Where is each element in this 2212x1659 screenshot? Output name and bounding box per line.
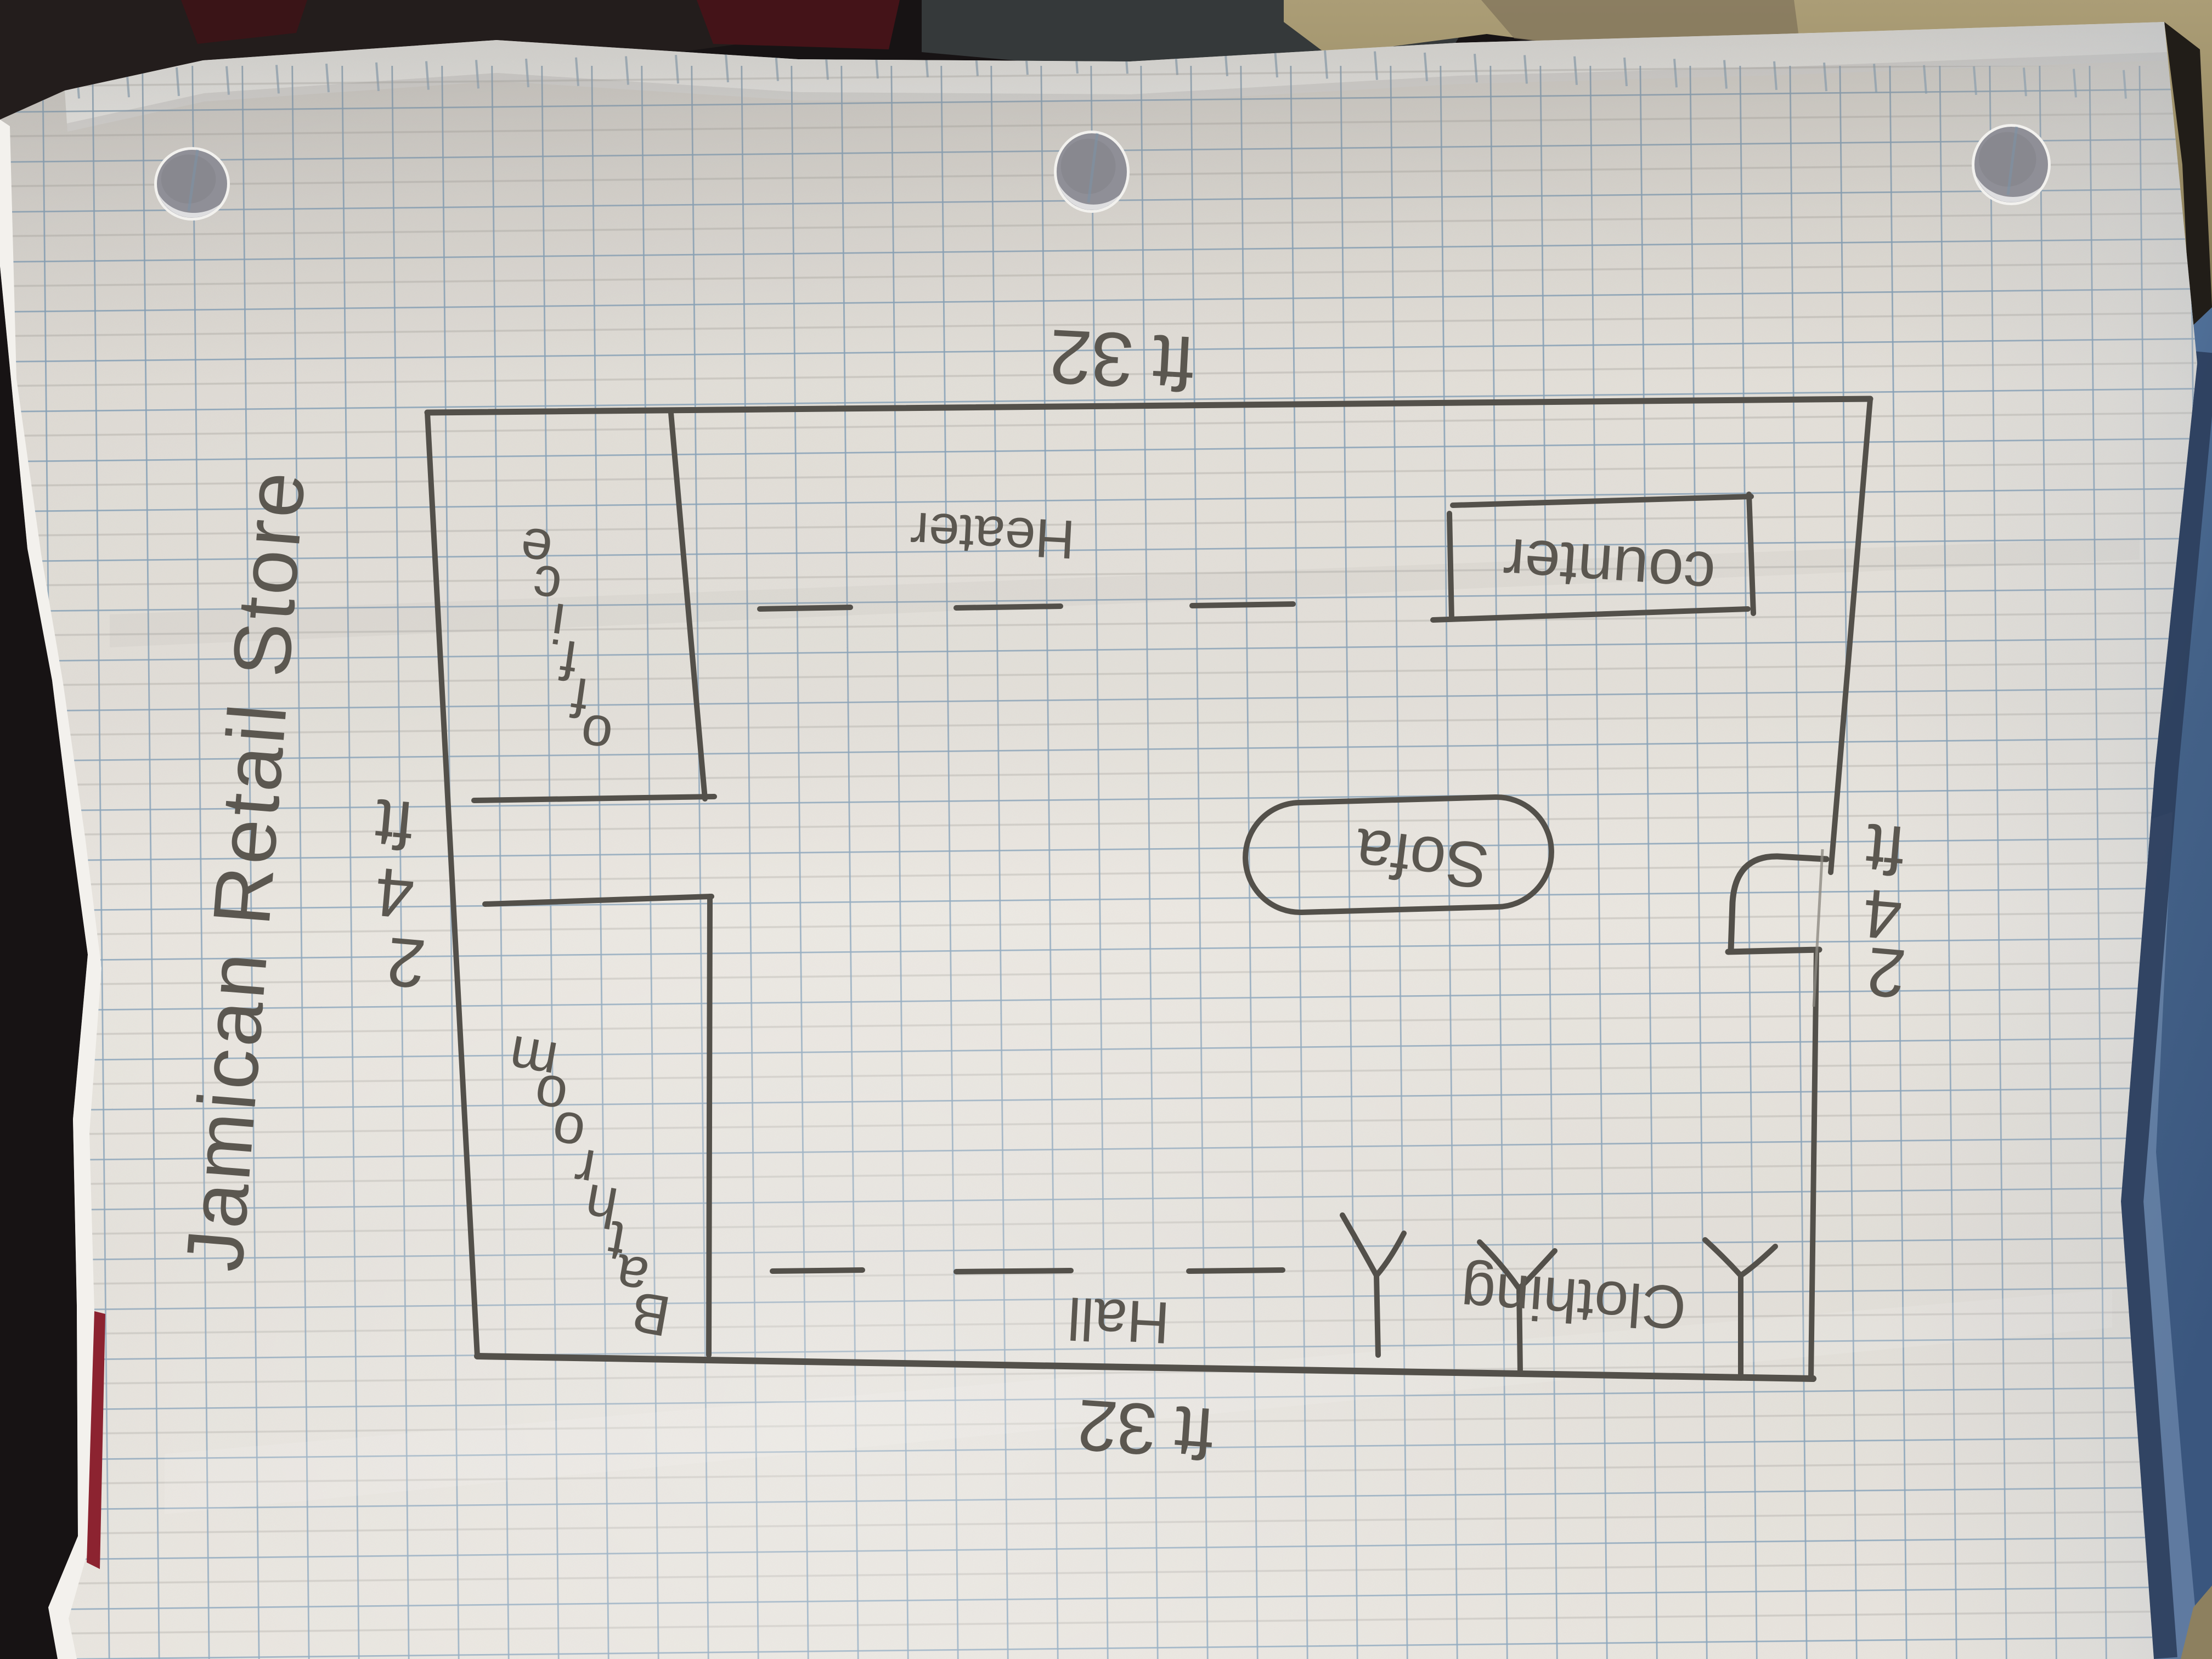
svg-text:Heater: Heater [909, 500, 1076, 571]
svg-text:4: 4 [372, 853, 417, 934]
svg-text:ft 32: ft 32 [1048, 313, 1196, 407]
svg-text:ft 32: ft 32 [1076, 1384, 1217, 1474]
svg-text:2: 2 [1864, 933, 1909, 1013]
svg-text:counter: counter [1501, 525, 1718, 611]
svg-text:ft: ft [372, 785, 416, 863]
svg-text:Hall: Hall [1066, 1285, 1171, 1357]
svg-text:2: 2 [383, 923, 428, 1003]
